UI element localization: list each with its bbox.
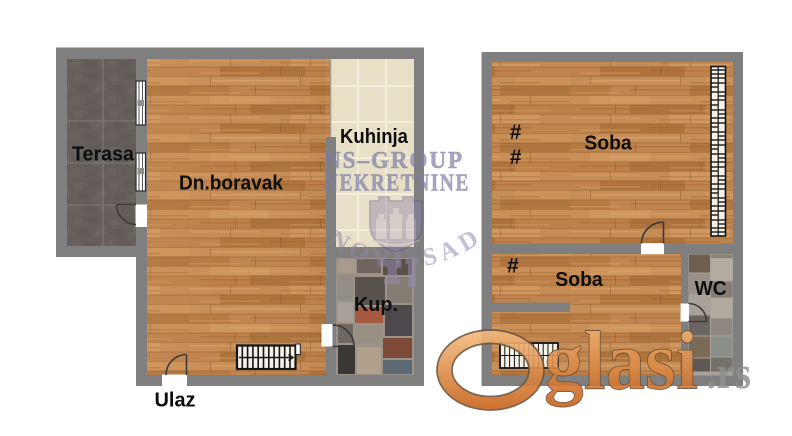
svg-text:Ulaz: Ulaz <box>155 389 196 411</box>
svg-text:#: # <box>507 255 519 278</box>
svg-text:Dn.boravak: Dn.boravak <box>179 173 284 195</box>
svg-text:Soba: Soba <box>555 269 603 291</box>
svg-text:Soba: Soba <box>584 132 632 154</box>
svg-text:.rs: .rs <box>706 348 751 398</box>
svg-text:#: # <box>510 146 522 169</box>
svg-text:glasi: glasi <box>544 315 698 408</box>
svg-text:Kup.: Kup. <box>354 294 398 316</box>
svg-text:WC: WC <box>695 278 727 300</box>
svg-text:Terasa: Terasa <box>72 144 135 166</box>
svg-text:#: # <box>510 121 522 144</box>
svg-text:NEKRETNINE: NEKRETNINE <box>324 171 470 197</box>
svg-text:Kuhinja: Kuhinja <box>340 126 409 148</box>
